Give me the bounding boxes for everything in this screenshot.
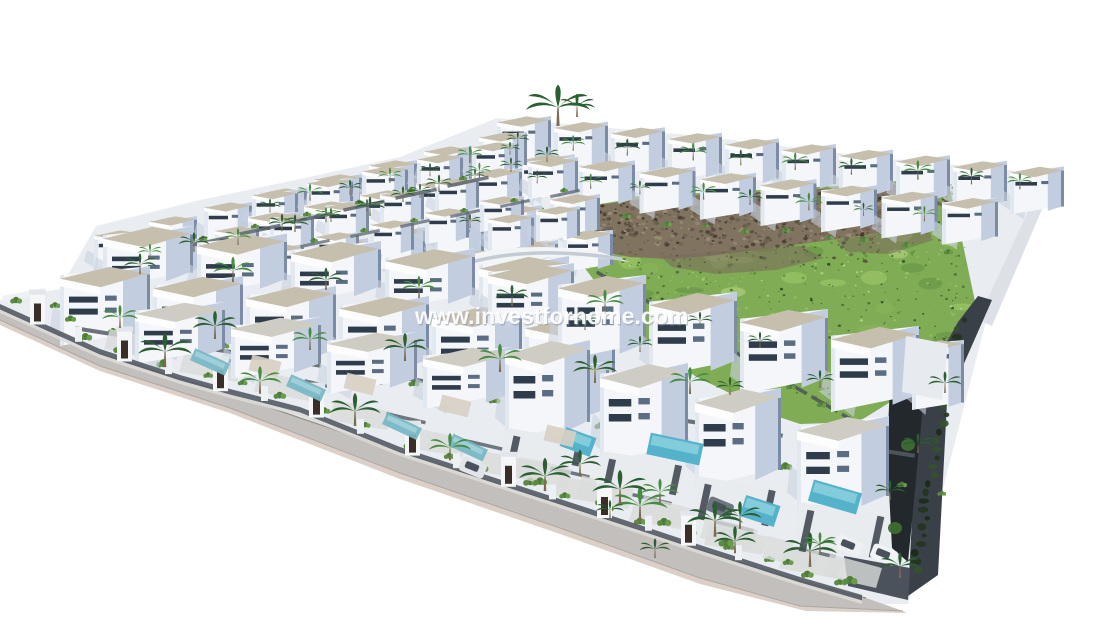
svg-text:www.investforhome.com: www.investforhome.com [414,303,689,329]
